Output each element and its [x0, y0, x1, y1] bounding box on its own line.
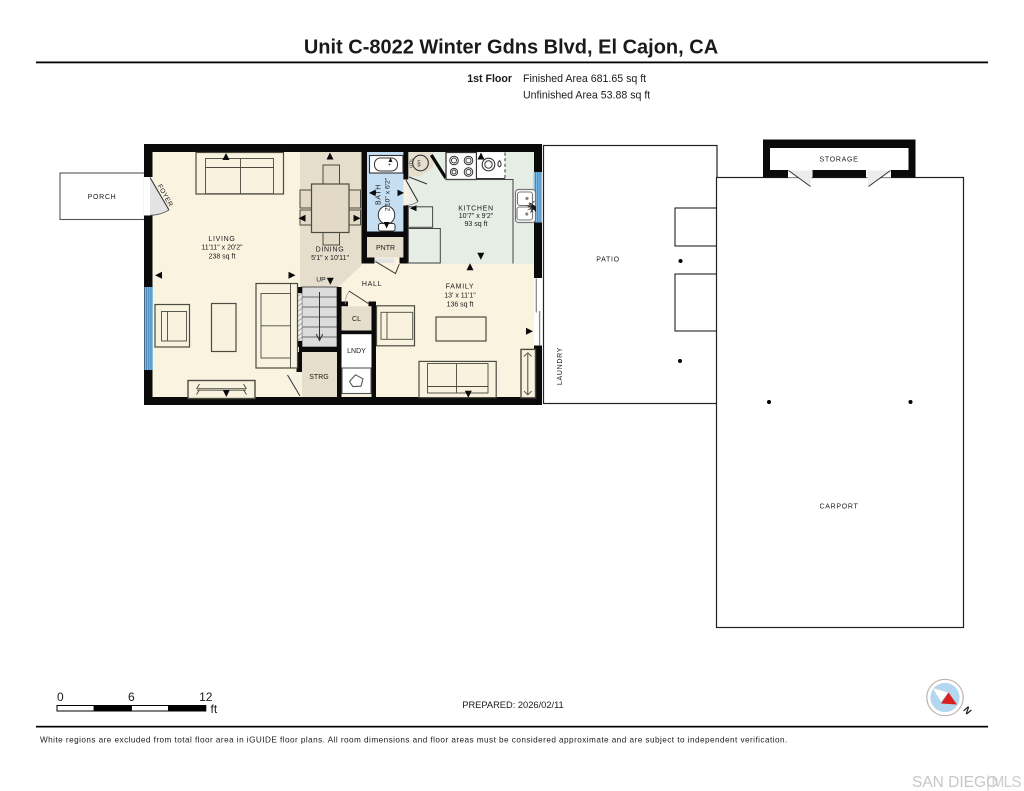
svg-text:0: 0: [57, 690, 64, 704]
svg-text:MLS: MLS: [992, 774, 1022, 791]
svg-text:1st Floor: 1st Floor: [467, 73, 512, 85]
svg-text:LNDY: LNDY: [347, 348, 366, 355]
svg-text:|: |: [986, 774, 990, 791]
svg-text:STRG: STRG: [309, 374, 328, 381]
svg-text:LAUNDRY: LAUNDRY: [557, 347, 564, 385]
svg-text:KITCHEN: KITCHEN: [458, 206, 494, 213]
svg-text:5'1" x 10'11": 5'1" x 10'11": [311, 255, 349, 262]
svg-text:UTIL: UTIL: [409, 158, 414, 168]
svg-text:WH: WH: [417, 160, 422, 167]
svg-text:13' x 11'1": 13' x 11'1": [444, 293, 476, 300]
svg-text:ft: ft: [211, 702, 218, 716]
svg-text:PORCH: PORCH: [88, 194, 117, 201]
svg-text:136 sq ft: 136 sq ft: [447, 302, 474, 309]
svg-text:10'7" x 9'2": 10'7" x 9'2": [459, 213, 494, 220]
svg-text:UP: UP: [316, 277, 326, 284]
svg-text:Unfinished Area 53.88 sq ft: Unfinished Area 53.88 sq ft: [523, 90, 650, 102]
svg-text:93 sq ft: 93 sq ft: [465, 221, 488, 228]
svg-text:PATIO: PATIO: [596, 257, 619, 264]
svg-text:2'10" x 6'2": 2'10" x 6'2": [385, 177, 392, 211]
svg-text:238 sq ft: 238 sq ft: [209, 254, 236, 261]
svg-text:PNTR: PNTR: [376, 245, 395, 252]
svg-text:LIVING: LIVING: [208, 236, 235, 243]
svg-text:DINING: DINING: [316, 247, 345, 254]
svg-text:BATH: BATH: [376, 184, 383, 205]
svg-text:CARPORT: CARPORT: [820, 504, 859, 511]
svg-text:CL: CL: [352, 316, 361, 323]
svg-text:White regions are excluded fro: White regions are excluded from total fl…: [40, 736, 788, 745]
svg-text:11'11" x 20'2": 11'11" x 20'2": [201, 245, 243, 252]
svg-text:Unit C-8022 Winter Gdns Blvd,: Unit C-8022 Winter Gdns Blvd, El Cajon, …: [304, 37, 718, 59]
svg-text:6: 6: [128, 690, 135, 704]
svg-text:STORAGE: STORAGE: [819, 157, 858, 164]
svg-text:HALL: HALL: [362, 281, 382, 288]
svg-text:Finished Area 681.65 sq ft: Finished Area 681.65 sq ft: [523, 73, 646, 85]
svg-text:FAMILY: FAMILY: [446, 284, 475, 291]
svg-text:PREPARED: 2026/02/11: PREPARED: 2026/02/11: [462, 700, 563, 710]
